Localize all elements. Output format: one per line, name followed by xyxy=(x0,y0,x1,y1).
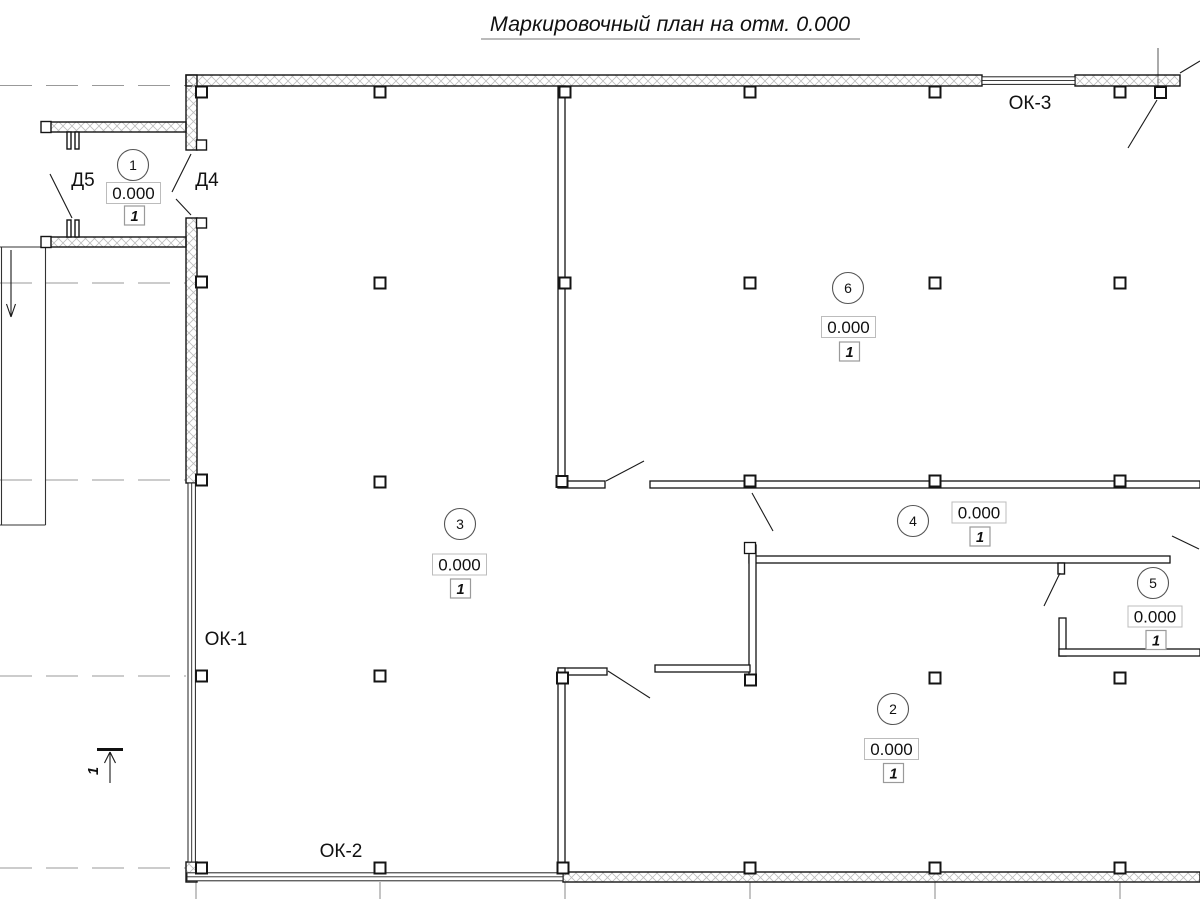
room-number: 3 xyxy=(456,516,464,532)
elevation-value: 0.000 xyxy=(1134,608,1177,627)
room-number: 2 xyxy=(889,701,897,717)
column-square xyxy=(196,671,207,682)
partition-room2-left xyxy=(655,665,750,672)
floor-plan-canvas: Маркировочный план на отм. 0.000 xyxy=(0,0,1200,900)
column-square xyxy=(557,673,568,684)
column-square xyxy=(1115,87,1126,98)
window-label-ok2: ОК-2 xyxy=(320,841,363,862)
finish-mark-value: 1 xyxy=(1152,634,1160,650)
room-marker-6: 60.0001 xyxy=(822,273,876,362)
elevation-value: 0.000 xyxy=(958,504,1001,523)
column-square xyxy=(1115,476,1126,487)
wall-end-cap xyxy=(41,237,51,248)
elevation-value: 0.000 xyxy=(112,184,155,203)
column-square xyxy=(745,476,756,487)
room-markers: 10.000130.000160.000140.000150.000120.00… xyxy=(107,150,1183,783)
room-marker-1: 10.0001 xyxy=(107,150,161,226)
column-square xyxy=(745,278,756,289)
door-leaf xyxy=(1044,573,1060,606)
partition-end-cap xyxy=(745,543,756,554)
finish-mark-value: 1 xyxy=(130,209,138,225)
wall-end-cap xyxy=(41,122,51,133)
column-square xyxy=(745,863,756,874)
column-square xyxy=(375,863,386,874)
room-marker-2: 20.0001 xyxy=(865,694,919,783)
window-label-ok3: ОК-3 xyxy=(1009,93,1052,114)
elevation-value: 0.000 xyxy=(438,556,481,575)
column-square xyxy=(375,87,386,98)
finish-mark-value: 1 xyxy=(845,345,853,361)
column-square xyxy=(1115,278,1126,289)
room-number: 5 xyxy=(1149,575,1157,591)
grid-axis-lines xyxy=(0,48,1158,899)
elevation-value: 0.000 xyxy=(870,740,913,759)
finish-mark-value: 1 xyxy=(456,582,464,598)
column-square xyxy=(196,863,207,874)
door-label-d4: Д4 xyxy=(195,170,219,191)
leader-line xyxy=(1128,100,1157,148)
left-wall-middle xyxy=(186,218,197,483)
column-square xyxy=(196,475,207,486)
column-square xyxy=(560,87,571,98)
door-jamb-tick xyxy=(1058,563,1065,574)
column-square xyxy=(930,87,941,98)
column-square xyxy=(1115,863,1126,874)
door-leaf xyxy=(1172,536,1199,549)
top-wall-left-segment xyxy=(186,75,982,86)
room-marker-4: 40.0001 xyxy=(898,502,1007,546)
column-square xyxy=(560,278,571,289)
door-label-d5: Д5 xyxy=(71,170,94,191)
door-leaf-d5 xyxy=(50,174,72,218)
drawing-title: Маркировочный план на отм. 0.000 xyxy=(490,12,850,36)
exterior-walls xyxy=(41,75,1200,882)
column-square xyxy=(196,87,207,98)
leader-line xyxy=(1180,61,1200,73)
room-number: 6 xyxy=(844,280,852,296)
windows xyxy=(187,77,1075,881)
column-square xyxy=(930,476,941,487)
column-square xyxy=(930,673,941,684)
window-label-ok1: ОК-1 xyxy=(205,629,248,650)
room-marker-3: 30.0001 xyxy=(433,509,487,599)
window-ok1 xyxy=(188,483,195,862)
column-square xyxy=(375,477,386,488)
finish-mark-value: 1 xyxy=(976,530,984,546)
door-leaf xyxy=(606,461,644,481)
window-ok3 xyxy=(982,77,1075,85)
column-square xyxy=(745,87,756,98)
section-number: 1 xyxy=(86,767,102,775)
partition-room5-horizontal xyxy=(1059,649,1200,656)
door-leaf-d4 xyxy=(172,154,191,192)
door-leaves-and-leaders xyxy=(50,61,1200,698)
column-square xyxy=(375,278,386,289)
entrance-ramp xyxy=(0,247,46,525)
top-wall-right-segment xyxy=(1075,75,1180,86)
finish-mark-value: 1 xyxy=(889,767,897,783)
partition-room3-room2 xyxy=(558,668,565,872)
column-square xyxy=(930,863,941,874)
partition-room4-room2 xyxy=(749,556,1170,563)
vestibule-bottom-wall xyxy=(45,237,186,247)
column-square xyxy=(1155,87,1166,98)
door-leaf xyxy=(608,671,650,698)
room-marker-5: 50.0001 xyxy=(1128,568,1182,650)
bottom-wall-right-segment xyxy=(563,872,1200,882)
column-square xyxy=(196,277,207,288)
column-grid xyxy=(196,87,1166,874)
column-square xyxy=(558,863,569,874)
column-square xyxy=(930,278,941,289)
room-number: 1 xyxy=(129,157,137,173)
door-leaf-d4 xyxy=(176,199,191,215)
column-square xyxy=(375,671,386,682)
column-square xyxy=(557,476,568,487)
elevation-value: 0.000 xyxy=(827,318,870,337)
leader-line xyxy=(752,493,773,531)
vestibule-top-wall xyxy=(45,122,186,132)
room-number: 4 xyxy=(909,513,917,529)
column-square xyxy=(1115,673,1126,684)
section-mark: 1 xyxy=(86,750,123,784)
partition-vertical-mid xyxy=(749,545,756,680)
column-square xyxy=(745,675,756,686)
